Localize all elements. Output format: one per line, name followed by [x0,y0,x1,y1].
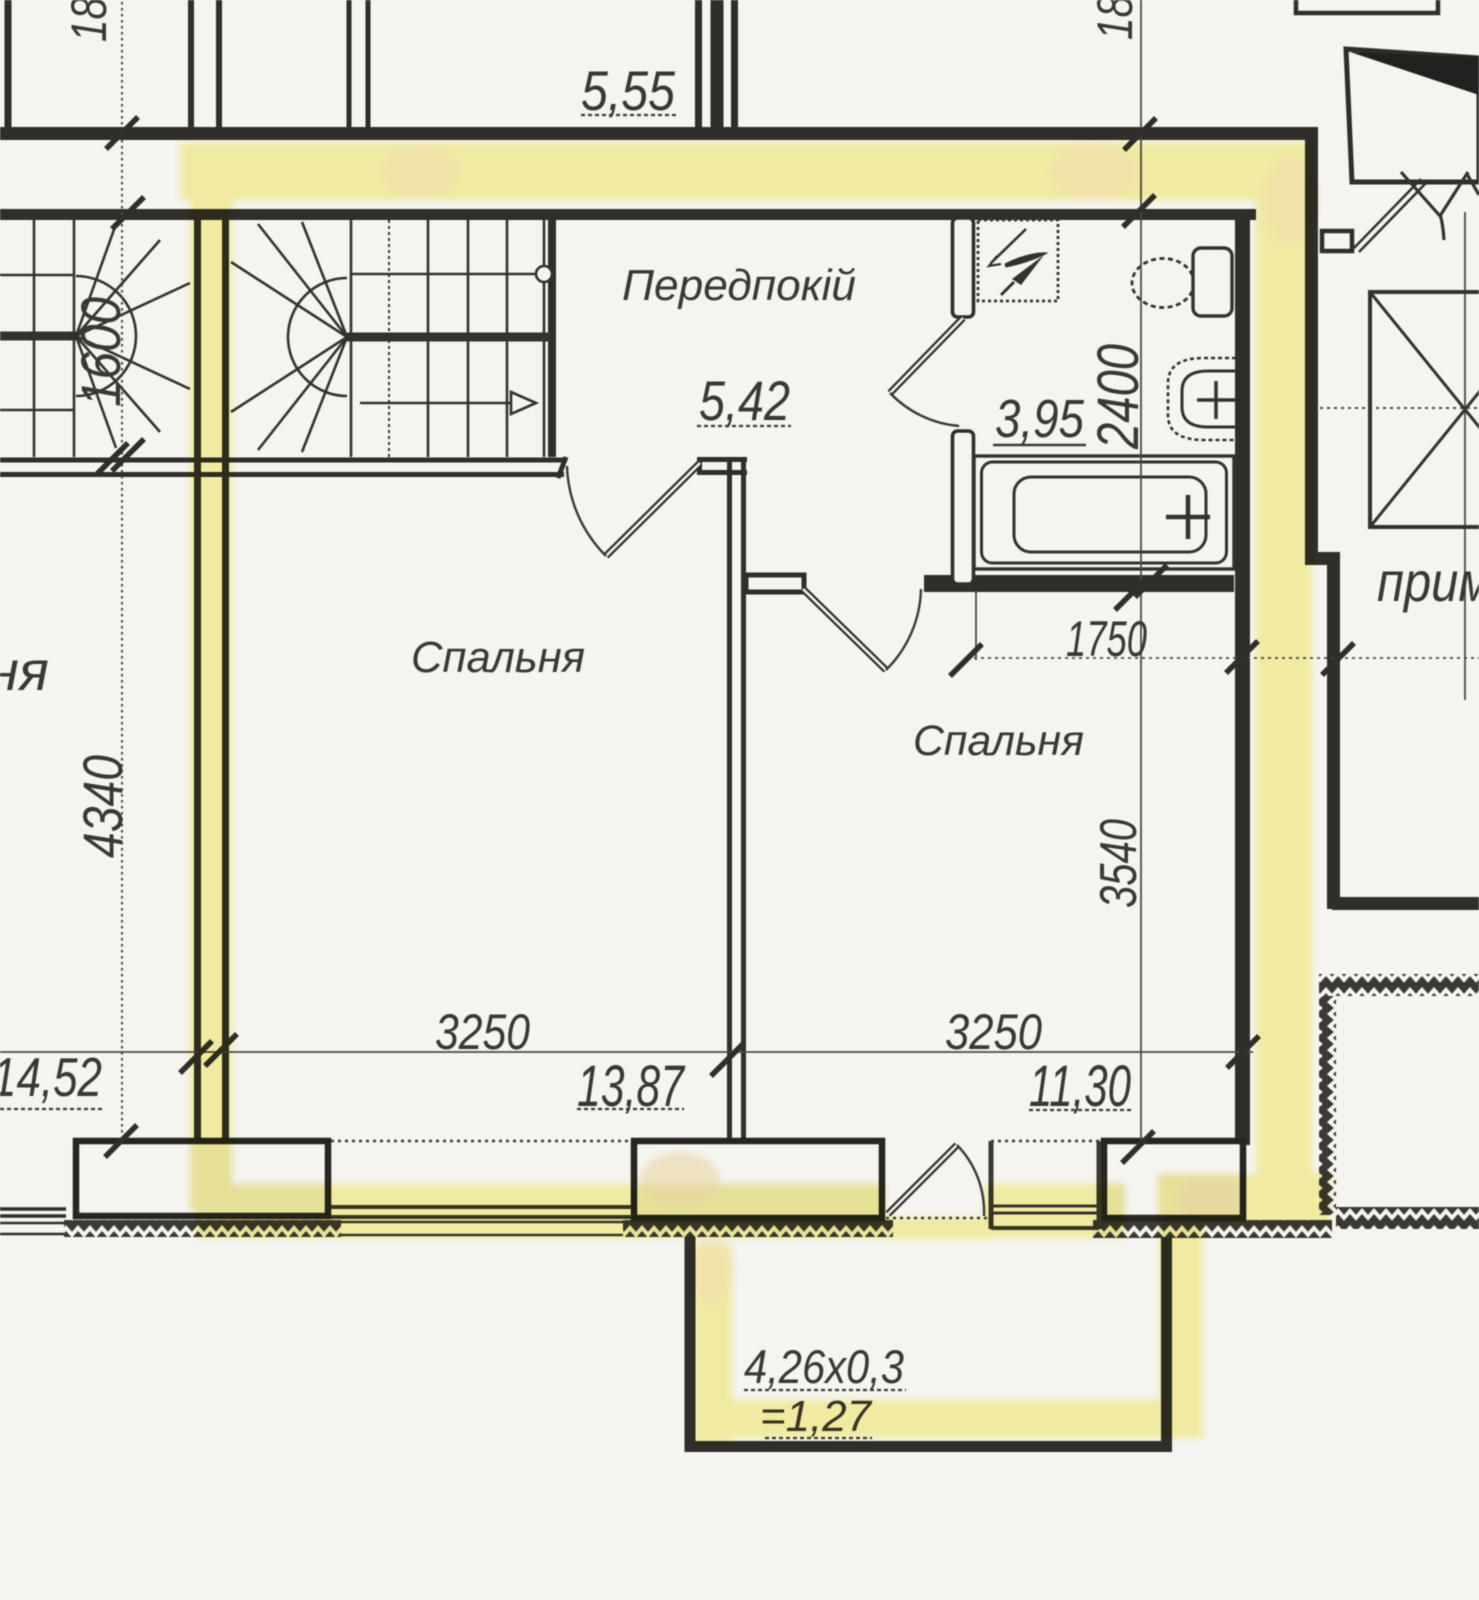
svg-text:5,55: 5,55 [581,59,676,122]
svg-text:Передпокій: Передпокій [622,261,856,310]
svg-text:2400: 2400 [1086,344,1151,450]
svg-text:Спальня: Спальня [913,717,1084,765]
svg-text:3,95: 3,95 [995,389,1085,449]
svg-text:ня: ня [0,639,49,702]
svg-text:3250: 3250 [435,1004,530,1060]
svg-text:14,52: 14,52 [0,1046,102,1108]
svg-text:прим: прим [1377,550,1479,613]
svg-text:18: 18 [61,0,117,42]
svg-text:5,42: 5,42 [699,369,790,432]
svg-text:Спальня: Спальня [411,633,585,682]
svg-text:1600: 1600 [69,297,132,407]
svg-text:1750: 1750 [1066,611,1147,667]
svg-text:4340: 4340 [71,755,134,858]
svg-text:3250: 3250 [945,1004,1042,1060]
svg-text:4,26x0,3: 4,26x0,3 [744,1340,904,1393]
svg-text:18: 18 [1087,0,1143,40]
svg-text:3540: 3540 [1090,819,1148,908]
